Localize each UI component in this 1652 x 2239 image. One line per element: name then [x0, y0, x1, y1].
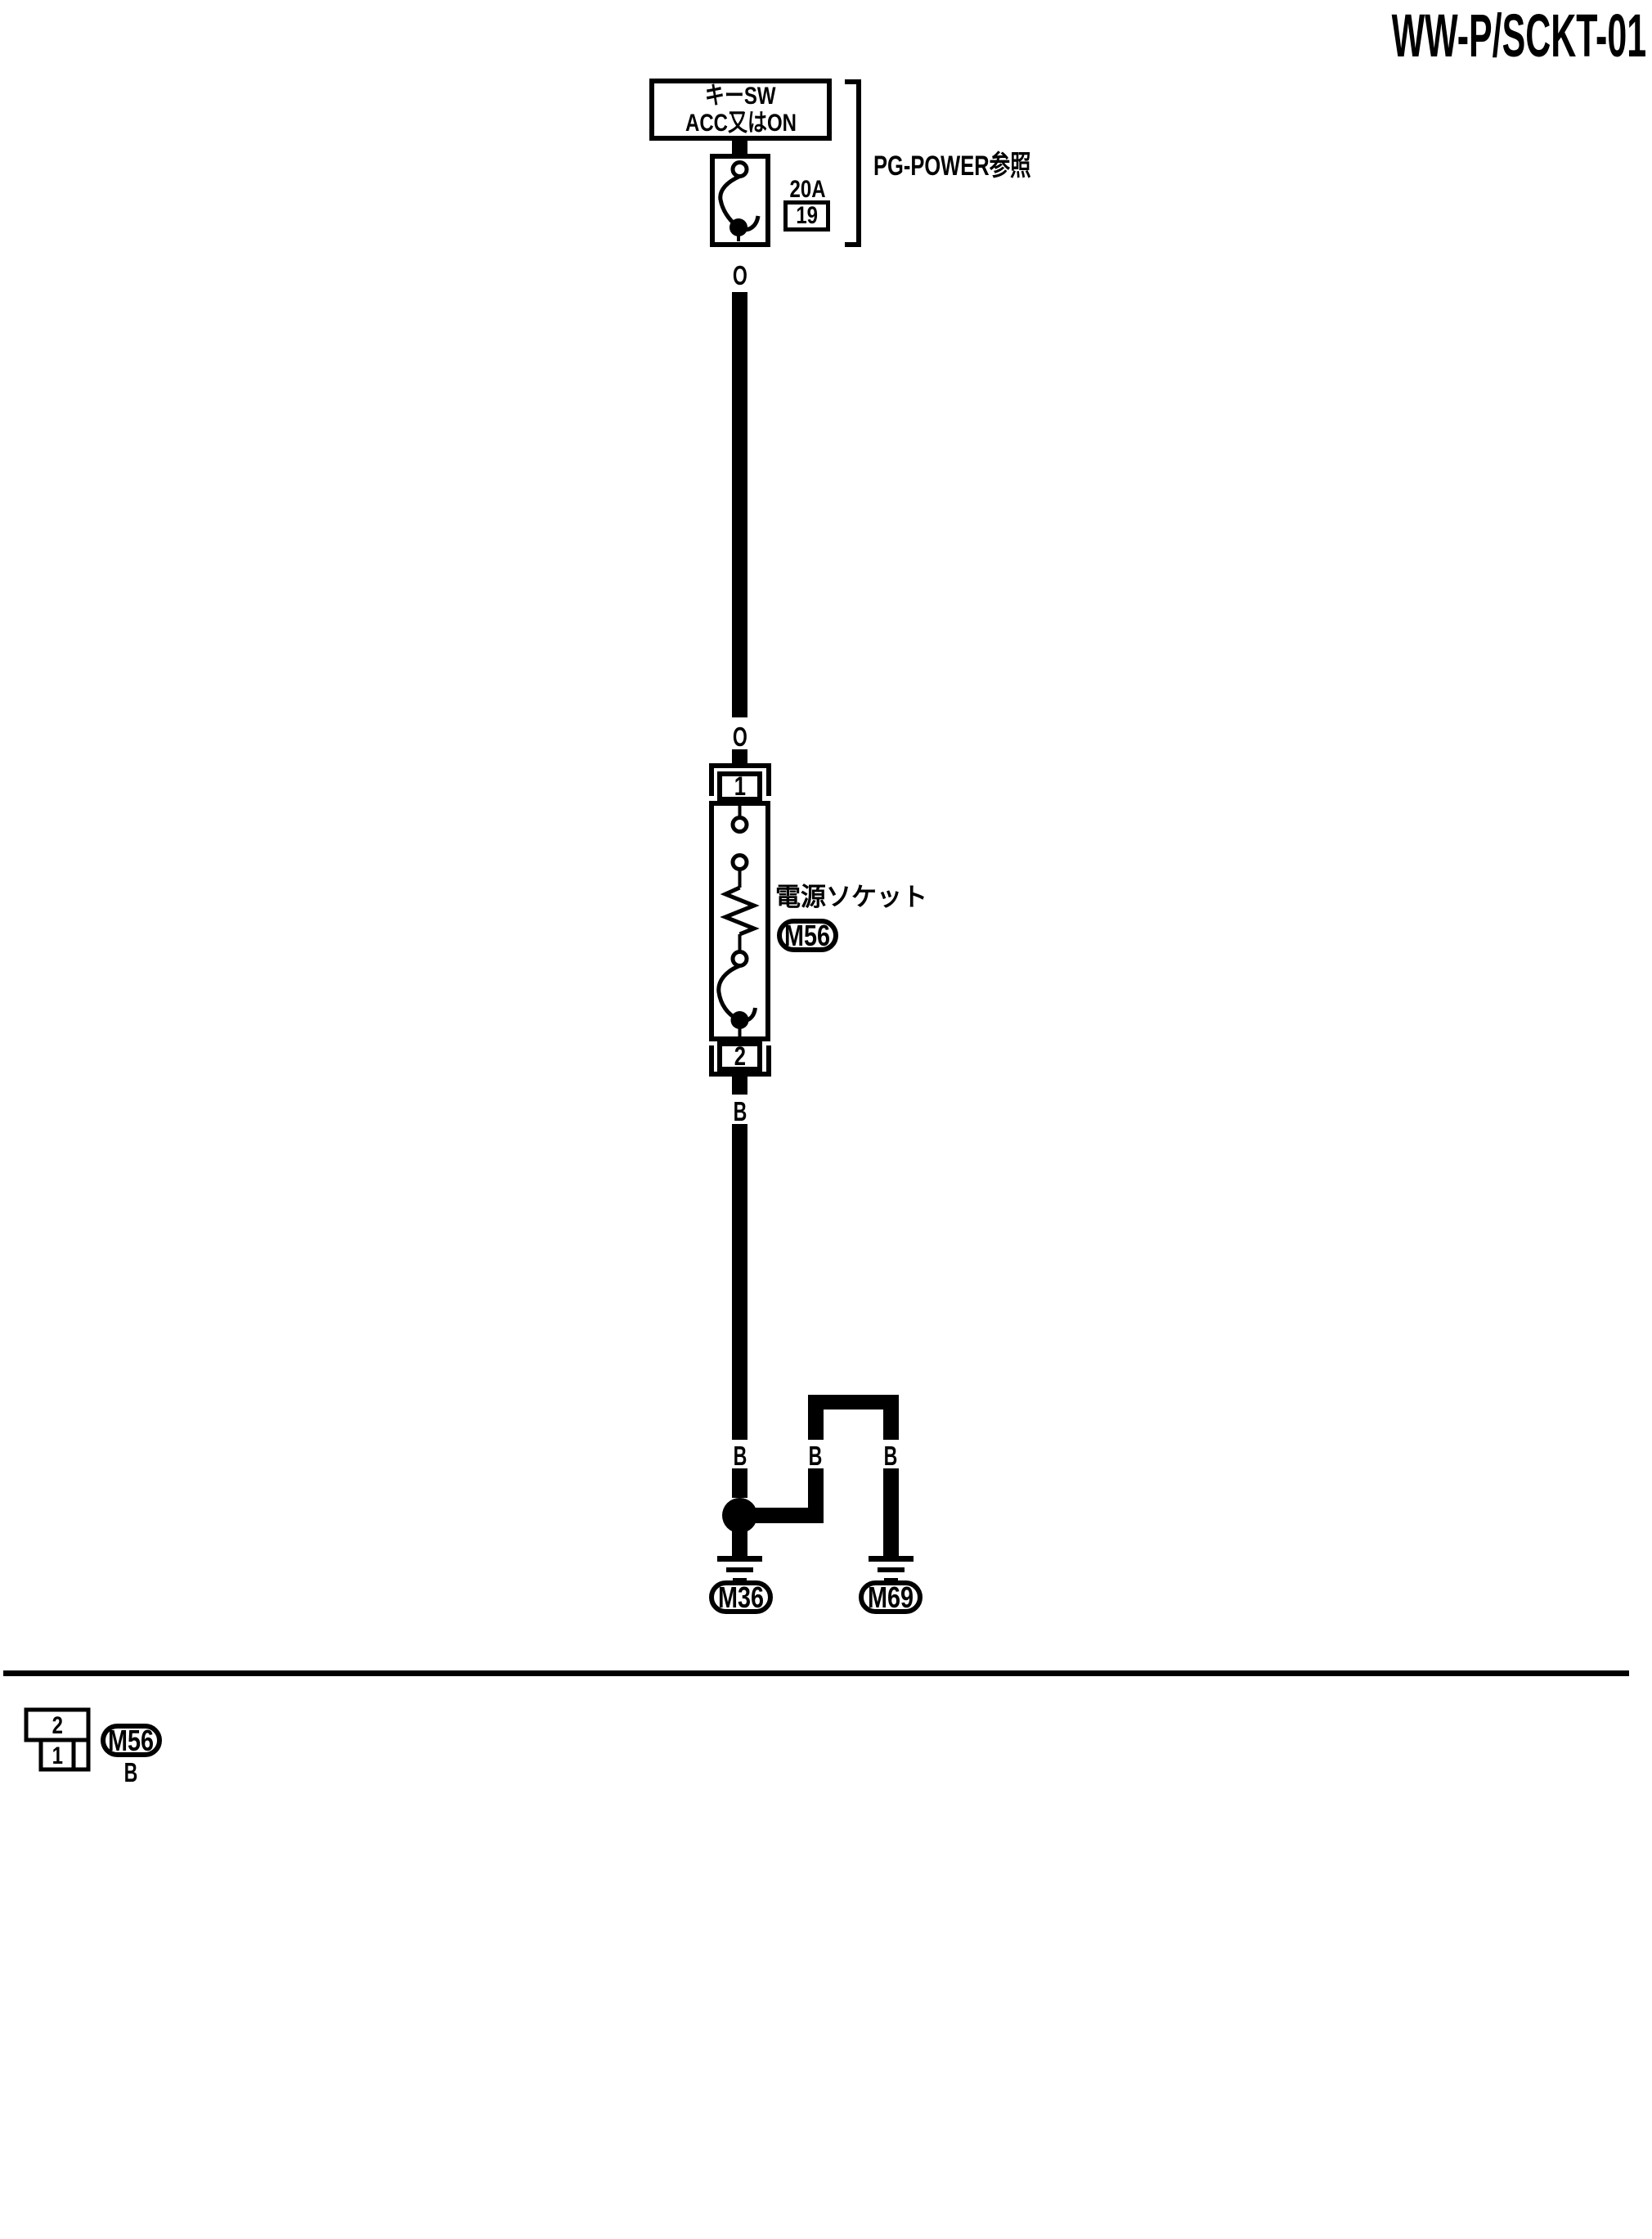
ground-branch-right-leg-upper — [883, 1409, 899, 1440]
wire-color-label-o-mid: O — [720, 723, 761, 750]
socket-top-housing-right — [766, 763, 771, 796]
wire-color-label-b-main: B — [720, 1442, 761, 1469]
key-switch-label-line2: ACC又はON — [671, 110, 810, 137]
wire-color-label-b-right: B — [870, 1442, 911, 1469]
ground-icon-right-bar1 — [869, 1556, 914, 1562]
section-divider-line — [3, 1670, 1629, 1676]
ground-junction-horizontal-wire — [751, 1508, 824, 1523]
ground-badge-m36-label: M36 — [718, 1580, 764, 1615]
ground-icon-left-bar1 — [717, 1556, 762, 1562]
power-socket-connector-label: M56 — [784, 919, 830, 953]
wire-lower-segment — [732, 1124, 747, 1440]
wire-color-label-b-socket: B — [720, 1098, 761, 1125]
socket-pin-2-box: 2 — [717, 1041, 762, 1072]
fuse-rating-label: 20A — [783, 178, 833, 202]
pinout-connector-badge: M56 — [101, 1724, 162, 1757]
pinout-pin-2-label: 2 — [37, 1714, 78, 1738]
wire-color-label-o-top: O — [720, 262, 761, 289]
wiring-diagram-page: WW-P/SCKT-01 キーSW ACC又はON 20A 19 PG-POWE… — [0, 0, 1652, 2239]
ground-branch-right-leg-lower — [883, 1468, 899, 1558]
fuse-top-stub — [732, 141, 747, 154]
fuse-number-box: 19 — [783, 200, 830, 232]
ground-badge-m69-label: M69 — [868, 1580, 914, 1615]
ground-branch-top-bar — [808, 1395, 899, 1409]
page-title: WW-P/SCKT-01 — [1207, 6, 1646, 66]
wire-main-lower-segment — [732, 1468, 747, 1498]
socket-bottom-stub — [732, 1077, 747, 1095]
pinout-pin-1-label: 1 — [37, 1744, 78, 1769]
socket-pin-2-label: 2 — [734, 1041, 745, 1072]
power-socket-symbol-icon — [714, 806, 765, 1036]
wire-color-label-b-mid: B — [795, 1442, 836, 1469]
ground-icon-left-bar2 — [726, 1567, 753, 1572]
ground-badge-m69: M69 — [859, 1580, 923, 1614]
pinout-wire-color-label: B — [110, 1759, 151, 1786]
socket-top-housing-left — [709, 763, 714, 796]
fuse-number-label: 19 — [796, 202, 818, 230]
key-switch-label-line1: キーSW — [696, 83, 784, 110]
fuse-symbol-icon — [715, 159, 765, 242]
pg-power-bracket-top-tick — [845, 79, 861, 84]
socket-top-housing-bar — [709, 763, 771, 768]
ground-icon-right-bar2 — [878, 1567, 905, 1572]
ground-branch-mid-leg-upper — [808, 1409, 824, 1440]
socket-pin-1-box: 1 — [717, 771, 762, 802]
pg-power-bracket-vertical — [856, 79, 861, 247]
page-title-text: WW-P/SCKT-01 — [1391, 6, 1646, 66]
key-switch-source-box: キーSW ACC又はON — [649, 79, 832, 141]
ground-stub-below-dot — [732, 1530, 747, 1558]
wire-upper-segment — [732, 292, 747, 717]
socket-pin-1-label: 1 — [734, 771, 745, 802]
ground-badge-m36: M36 — [709, 1580, 773, 1614]
power-socket-connector-badge: M56 — [777, 919, 838, 952]
pg-power-bracket-bottom-tick — [845, 242, 861, 247]
pinout-connector-label: M56 — [108, 1724, 154, 1758]
socket-top-stub — [732, 749, 747, 763]
pg-power-reference-label: PG-POWER参照 — [873, 152, 1084, 180]
power-socket-name-label: 電源ソケット — [775, 884, 927, 910]
